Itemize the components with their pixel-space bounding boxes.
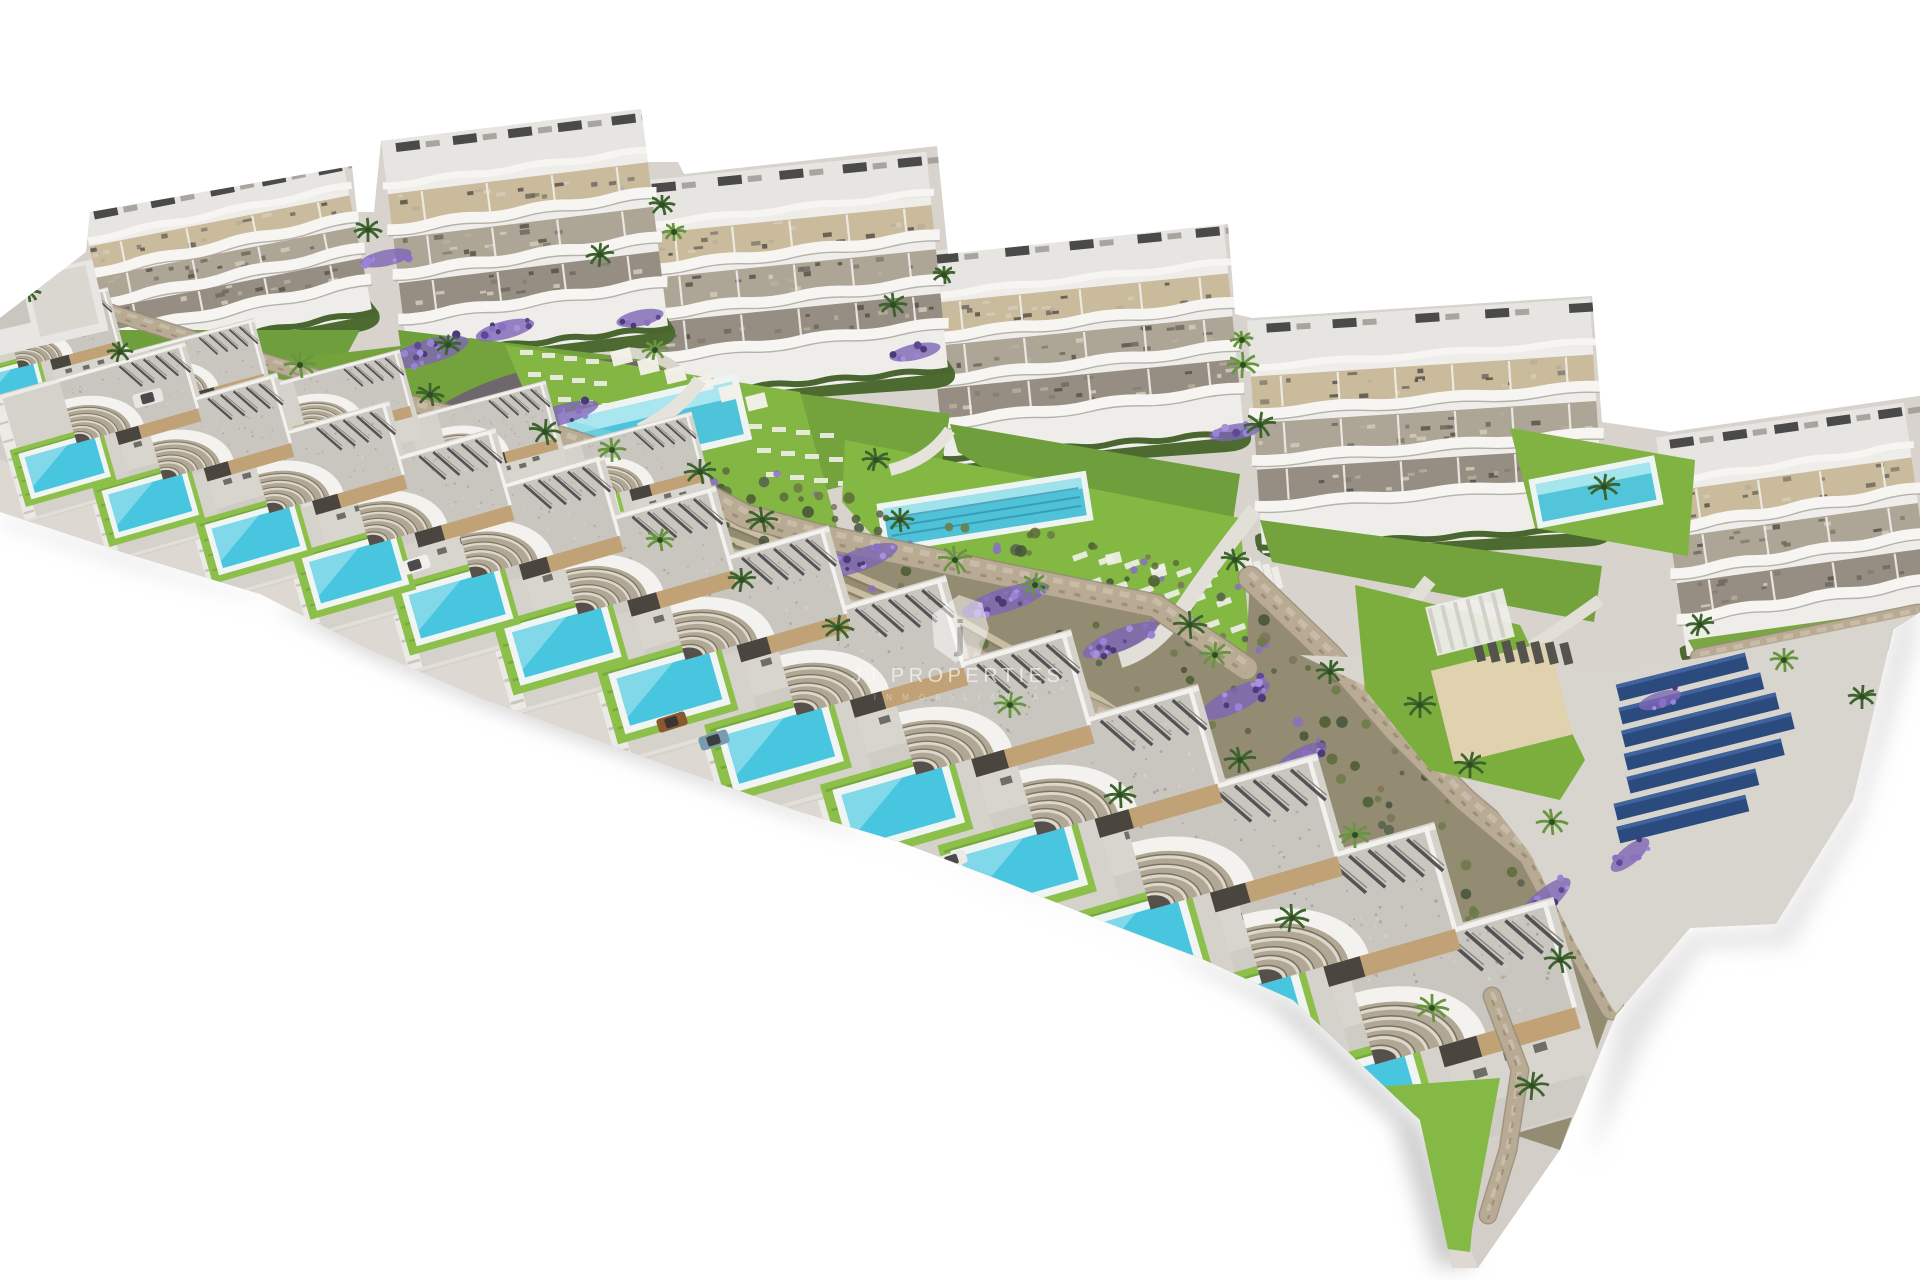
svg-text:I N M O B I L I A R I A: I N M O B I L I A R I A [874, 693, 1043, 702]
svg-text:j: j [953, 613, 965, 657]
svg-text:JJ PROPERTIES: JJ PROPERTIES [852, 665, 1065, 687]
